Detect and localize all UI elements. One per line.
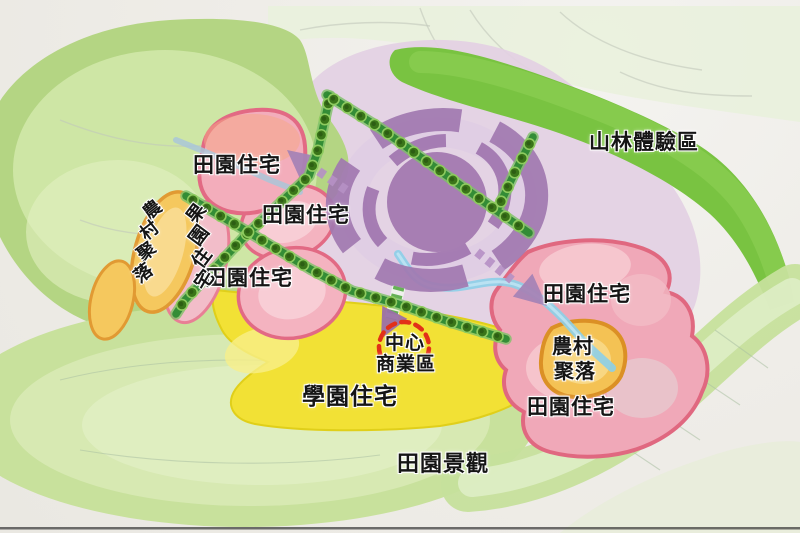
- tree-icon-core: [450, 177, 454, 181]
- label-garden-landscape: 田園景觀: [397, 453, 489, 476]
- bottom-frame-line: [0, 527, 800, 530]
- label-mountain-forest-zone: 山林體驗區: [589, 131, 699, 153]
- tree-icon-core: [498, 199, 502, 203]
- tree-icon-core: [231, 221, 235, 225]
- tree-icon-core: [424, 159, 428, 163]
- tree-icon-core: [385, 131, 389, 135]
- tree-icon-core: [463, 186, 467, 190]
- label-cbd-line1: 中心: [385, 334, 425, 354]
- tree-icon-core: [222, 254, 226, 258]
- tree-icon-core: [322, 116, 326, 120]
- tree-icon-core: [476, 195, 480, 199]
- tree-icon-core: [331, 96, 335, 100]
- tree-icon-core: [372, 122, 376, 126]
- tree-icon-core: [233, 243, 237, 247]
- tree-icon-core: [315, 148, 319, 152]
- tree-icon-core: [526, 141, 530, 145]
- tree-icon-core: [259, 237, 263, 241]
- tree-icon-core: [403, 304, 407, 308]
- tree-icon-core: [273, 245, 277, 249]
- tree-icon-core: [245, 229, 249, 233]
- tree-icon-core: [388, 299, 392, 303]
- tree-icon-core: [358, 113, 362, 117]
- tree-icon-core: [343, 285, 347, 289]
- tree-icon-core: [328, 277, 332, 281]
- label-farm-village-east-line1: 農村: [552, 336, 594, 357]
- tree-icon-core: [357, 290, 361, 294]
- tree-icon-core: [344, 105, 348, 109]
- tree-icon-core: [479, 329, 483, 333]
- label-garden-residence-east: 田園住宅: [543, 283, 631, 305]
- tree-icon-core: [189, 289, 193, 293]
- tree-icon-core: [291, 187, 295, 191]
- tree-icon-core: [256, 220, 260, 224]
- label-campus-residence: 學園住宅: [302, 385, 398, 409]
- tree-icon-core: [434, 314, 438, 318]
- tree-icon-core: [179, 302, 183, 306]
- tree-icon-core: [505, 184, 509, 188]
- label-garden-residence-southeast: 田園住宅: [527, 396, 615, 418]
- tree-icon-core: [516, 223, 520, 227]
- tree-icon-core: [310, 163, 314, 167]
- label-garden-residence-2: 田園住宅: [262, 204, 350, 226]
- tree-icon-core: [314, 270, 318, 274]
- label-cbd-line2: 商業區: [376, 355, 436, 375]
- tree-icon-core: [437, 168, 441, 172]
- tree-icon-core: [287, 254, 291, 258]
- tree-icon-core: [398, 140, 402, 144]
- tree-icon-core: [464, 324, 468, 328]
- label-farm-village-east-line2: 聚落: [554, 361, 596, 382]
- tree-icon-core: [495, 333, 499, 337]
- tree-icon-core: [449, 320, 453, 324]
- tree-icon-core: [218, 213, 222, 217]
- tree-icon-core: [519, 155, 523, 159]
- tree-icon-core: [419, 309, 423, 313]
- tree-icon-core: [502, 214, 506, 218]
- tree-icon-core: [300, 262, 304, 266]
- tree-icon-core: [318, 132, 322, 136]
- label-garden-residence-nw: 田園住宅: [193, 154, 281, 176]
- tree-icon-core: [489, 205, 493, 209]
- tree-icon-core: [302, 177, 306, 181]
- tree-icon-core: [411, 149, 415, 153]
- tree-icon-core: [512, 170, 516, 174]
- tree-icon-core: [373, 295, 377, 299]
- planning-concept-map: 山林體驗區 田園住宅 田園住宅 田園住宅 田園住宅 田園住宅 學園住宅 田園景觀…: [0, 0, 800, 533]
